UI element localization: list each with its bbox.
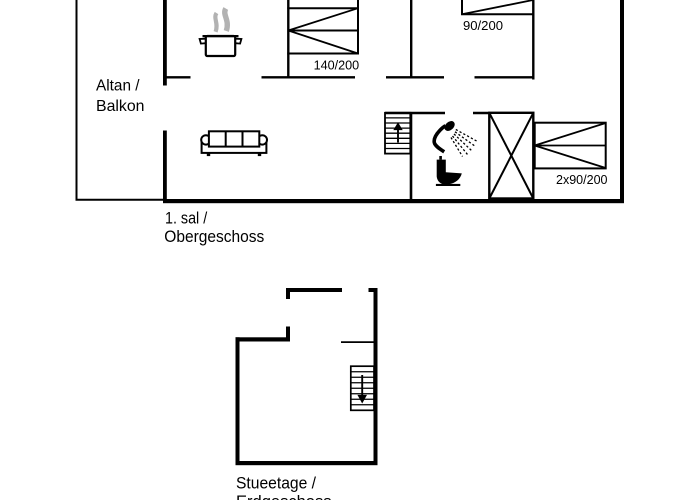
svg-text:2x90/200: 2x90/200 (556, 172, 608, 187)
svg-text:90/200: 90/200 (463, 18, 503, 33)
svg-text:1. sal /: 1. sal / (165, 208, 207, 227)
svg-text:Stueetage /: Stueetage / (236, 474, 316, 493)
svg-text:Erdgeschoss: Erdgeschoss (236, 492, 332, 500)
svg-text:Obergeschoss: Obergeschoss (164, 227, 264, 246)
svg-text:140/200: 140/200 (314, 58, 360, 73)
svg-text:Balkon: Balkon (96, 98, 145, 115)
svg-text:Altan /: Altan / (96, 77, 140, 94)
